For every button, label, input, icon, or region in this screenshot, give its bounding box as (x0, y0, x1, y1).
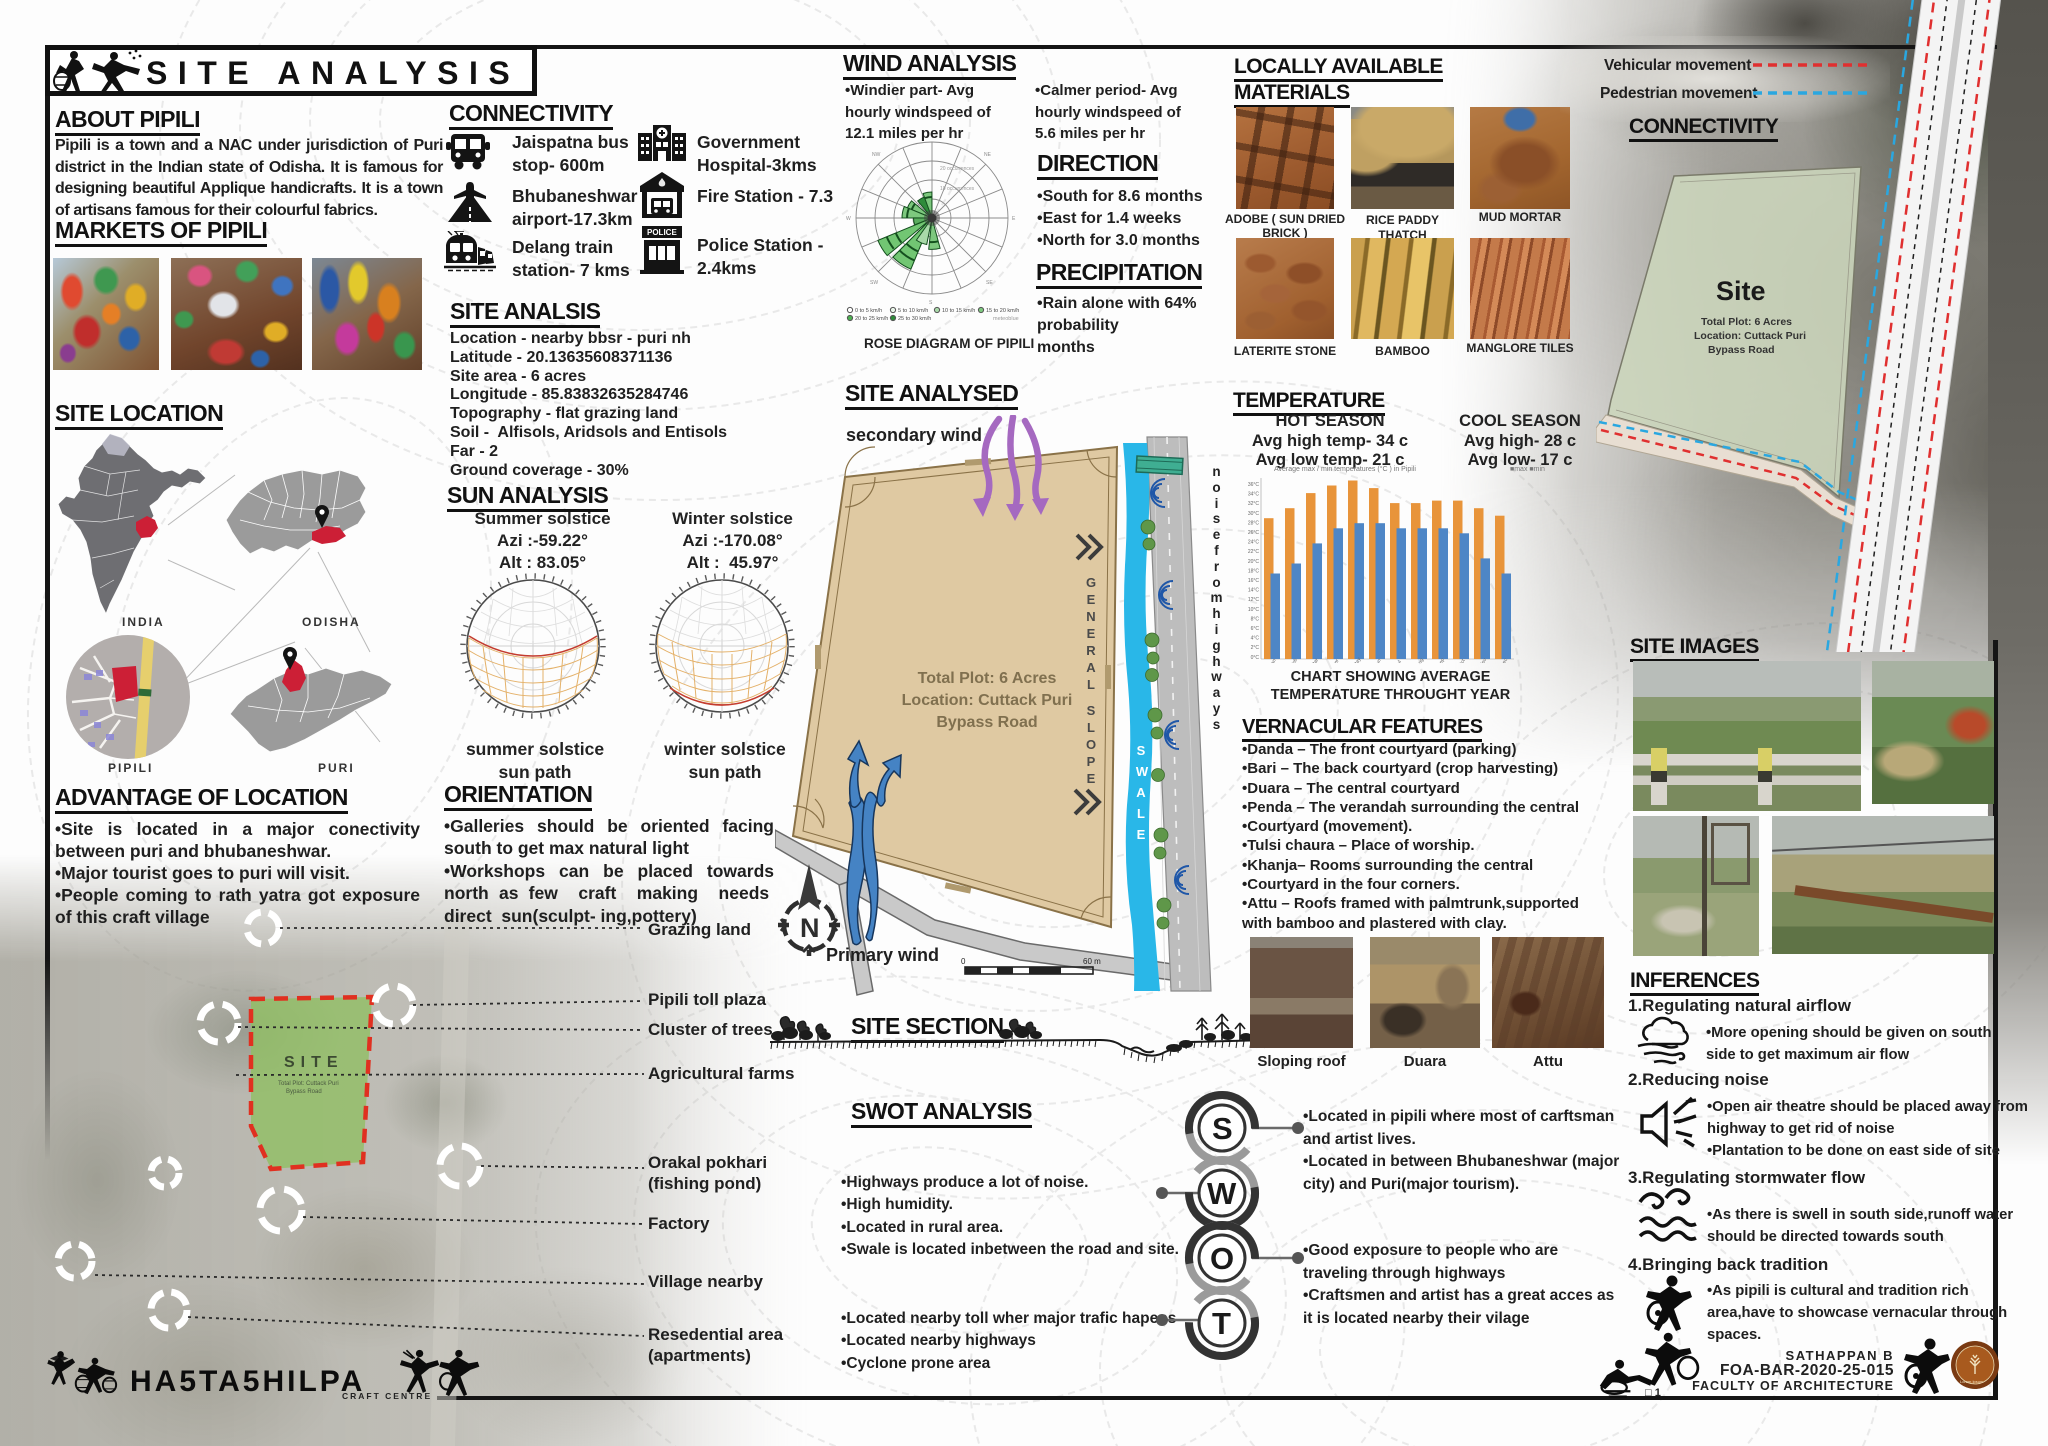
svg-text:PURI: PURI (318, 761, 355, 775)
svg-text:N: N (1086, 609, 1095, 624)
svg-text:34°C: 34°C (1248, 492, 1260, 498)
svg-text:E: E (1137, 827, 1146, 842)
svg-text:S: S (929, 300, 933, 306)
svg-text:20°C: 20°C (1248, 559, 1260, 565)
svg-text:G: G (1086, 575, 1096, 590)
svg-text:S: S (1087, 703, 1096, 718)
svg-text:Lorem Ipsum: Lorem Ipsum (1960, 1379, 1984, 1384)
svg-text:10°C: 10°C (1248, 607, 1260, 613)
svg-text:E: E (1087, 771, 1096, 786)
svg-text:meteoblue: meteoblue (993, 316, 1019, 322)
svg-text:25 to 30 km/h: 25 to 30 km/h (898, 316, 931, 322)
svg-text:P: P (1087, 754, 1096, 769)
svg-text:T: T (1212, 1306, 1231, 1341)
svg-text:NW: NW (872, 152, 881, 158)
svg-text:INDIA: INDIA (122, 615, 165, 629)
svg-text:18°C: 18°C (1248, 568, 1260, 574)
svg-text:Location: Cuttack Puri: Location: Cuttack Puri (1694, 330, 1806, 342)
svg-text:36°C: 36°C (1248, 482, 1260, 488)
svg-text:L: L (1087, 677, 1095, 692)
svg-text:SW: SW (870, 280, 878, 286)
svg-text:L: L (1137, 806, 1145, 821)
svg-text:26°C: 26°C (1248, 530, 1260, 536)
svg-text:22°C: 22°C (1248, 549, 1260, 555)
svg-text:12°C: 12°C (1248, 597, 1260, 603)
svg-text:Total Plot: Cuttack Puri: Total Plot: Cuttack Puri (278, 1081, 339, 1087)
svg-text:S: S (1137, 743, 1146, 758)
svg-text:Total Plot: 6 Acres: Total Plot: 6 Acres (918, 670, 1057, 687)
svg-text:W: W (846, 216, 851, 222)
svg-text:O: O (1086, 737, 1096, 752)
svg-text:0: 0 (961, 957, 966, 966)
svg-text:Jul: Jul (1395, 659, 1403, 663)
svg-text:L: L (1087, 720, 1095, 735)
svg-text:24°C: 24°C (1248, 540, 1260, 546)
svg-text:ODISHA: ODISHA (302, 615, 361, 629)
svg-text:E: E (1087, 626, 1096, 641)
svg-text:Total Plot: 6 Acres: Total Plot: 6 Acres (1701, 316, 1792, 328)
svg-text:Bypass Road: Bypass Road (936, 714, 1037, 731)
svg-text:E: E (1012, 216, 1016, 222)
svg-text:10 to 15 km/h: 10 to 15 km/h (942, 308, 975, 314)
svg-text:15 to 20 km/h: 15 to 20 km/h (986, 308, 1019, 314)
svg-text:6°C: 6°C (1251, 626, 1260, 632)
svg-text:N: N (800, 913, 820, 943)
svg-text:R: R (1086, 643, 1096, 658)
svg-text:Location: Cuttack Puri: Location: Cuttack Puri (902, 692, 1073, 709)
svg-text:30°C: 30°C (1248, 511, 1260, 517)
svg-text:2°C: 2°C (1251, 645, 1260, 651)
svg-text:O: O (1210, 1241, 1234, 1276)
svg-text:0 to 5 km/h: 0 to 5 km/h (855, 308, 882, 314)
svg-text:NE: NE (984, 152, 992, 158)
svg-text:0°C: 0°C (1251, 655, 1260, 661)
svg-text:28°C: 28°C (1248, 520, 1260, 526)
svg-text:W: W (1207, 1176, 1237, 1211)
svg-text:5 to 10 km/h: 5 to 10 km/h (898, 308, 928, 314)
svg-text:Bypass Road: Bypass Road (1708, 344, 1775, 356)
svg-text:SITE: SITE (284, 1054, 344, 1071)
svg-text:N: N (930, 138, 934, 140)
svg-text:20 to 25 km/h: 20 to 25 km/h (855, 316, 888, 322)
svg-text:Site: Site (1716, 276, 1766, 306)
svg-text:E: E (1087, 592, 1096, 607)
svg-text:SE: SE (986, 280, 993, 286)
svg-text:POLICE: POLICE (647, 228, 677, 237)
svg-text:PIPILI: PIPILI (108, 761, 153, 775)
svg-text:A: A (1086, 660, 1096, 675)
svg-text:10 occurrences: 10 occurrences (940, 186, 975, 192)
svg-text:A: A (1136, 785, 1146, 800)
svg-text:32°C: 32°C (1248, 501, 1260, 507)
svg-text:60 m: 60 m (1083, 957, 1101, 966)
svg-text:S: S (1212, 1111, 1233, 1146)
svg-text:20 occurrences: 20 occurrences (940, 166, 975, 172)
svg-text:14°C: 14°C (1248, 588, 1260, 594)
svg-text:4°C: 4°C (1251, 636, 1260, 642)
svg-text:W: W (1136, 764, 1149, 779)
svg-text:Bypass Road: Bypass Road (286, 1089, 322, 1095)
svg-text:8°C: 8°C (1251, 616, 1260, 622)
svg-text:16°C: 16°C (1248, 578, 1260, 584)
